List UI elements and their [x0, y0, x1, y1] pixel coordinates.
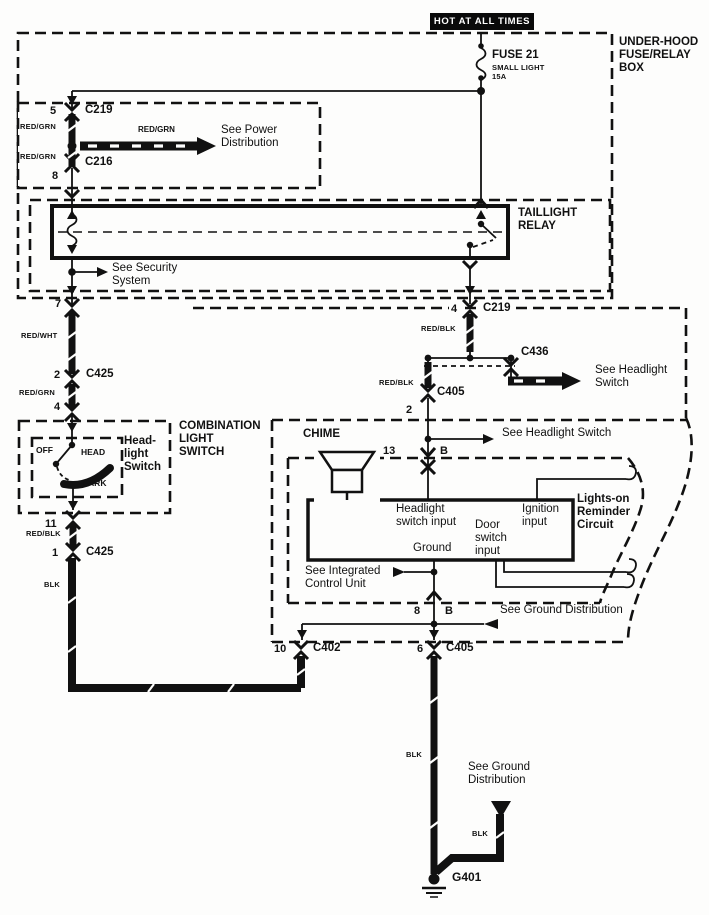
label-ground: Ground: [413, 542, 451, 555]
fuse-name-label: FUSE 21: [492, 49, 539, 62]
connector-label-c405-lower: C405: [446, 642, 474, 655]
switch-position-head: HEAD: [81, 448, 105, 458]
connector-label-c216: C216: [85, 156, 113, 169]
wire-label-blk-3: BLK: [472, 830, 488, 838]
diagram-artwork: [0, 0, 709, 915]
wire-label-red-blk-1: RED/BLK: [421, 325, 456, 333]
switch-position-park: PARK: [83, 479, 106, 489]
pin-label-5: 5: [50, 105, 56, 117]
fuse-rating-label: 15A: [492, 73, 506, 81]
wire-label-blk-1: BLK: [44, 581, 60, 589]
input-label-headlight-switch: Headlight switch input: [396, 503, 456, 529]
pin-label-6: 6: [417, 643, 423, 655]
combination-switch-label: COMBINATION LIGHT SWITCH: [179, 420, 261, 459]
pin-label-13: 13: [383, 445, 395, 457]
connector-label-c219-right: C219: [481, 302, 513, 315]
callout-see-headlight-switch-2: See Headlight Switch: [502, 427, 611, 440]
underhood-box-label: UNDER-HOOD FUSE/RELAY BOX: [619, 36, 698, 75]
arrow-see-headlight-chime-head: [483, 434, 494, 444]
pin-label-2-left: 2: [54, 369, 60, 381]
wire-label-red-blk-3: RED/BLK: [26, 530, 61, 538]
ground-label-g401: G401: [452, 871, 481, 884]
pin-label-8-b: 8: [414, 605, 420, 617]
pin-label-2-right: 2: [406, 404, 412, 416]
connector-label-b-top: B: [440, 445, 448, 457]
wire-door-input-1: [504, 560, 626, 572]
wire-label-red-blk-2: RED/BLK: [379, 379, 414, 387]
headlight-switch-label: Head- light Switch: [124, 435, 161, 474]
callout-see-power-distribution: See Power Distribution: [221, 124, 279, 150]
fuse-symbol: [477, 48, 486, 80]
wire-break-hook-1: [626, 466, 636, 479]
wire-blk-left-l: [72, 558, 301, 688]
arrow-see-headlight-switch: [508, 372, 581, 390]
callout-see-headlight-switch-1: See Headlight Switch: [595, 364, 667, 390]
pin-label-4-left: 4: [54, 401, 60, 413]
connector-label-b-bottom: B: [445, 605, 453, 617]
chime-icon: [314, 447, 380, 503]
wire-label-red-grn-1: RED/GRN: [20, 123, 56, 131]
lights-on-reminder-label: Lights-on Reminder Circuit: [577, 493, 630, 532]
wire-label-red-grn-2: RED/GRN: [20, 153, 56, 161]
callout-see-ground-distribution-2: See Ground Distribution: [468, 761, 530, 787]
wire-label-red-grn-arrow: RED/GRN: [138, 126, 175, 135]
wire-to-c402: [302, 624, 434, 640]
pin-label-7: 7: [55, 298, 61, 310]
callout-see-integrated-control-unit: See Integrated Control Unit: [305, 565, 380, 591]
callout-see-ground-distribution-1: See Ground Distribution: [500, 604, 623, 617]
arrow-see-ground-head: [484, 619, 498, 629]
pin-label-10: 10: [274, 643, 286, 655]
wiring-diagram: HOT AT ALL TIMES UNDER-HOOD FUSE/RELAY B…: [0, 0, 709, 915]
hot-at-all-times-banner: HOT AT ALL TIMES: [430, 13, 534, 30]
arrow-see-security-head: [97, 267, 108, 277]
relay-exit-chevron: [463, 261, 477, 268]
component-boxes: [18, 103, 573, 560]
pin-label-1: 1: [52, 547, 58, 559]
wire-break-hook-3: [624, 574, 634, 587]
input-label-ignition: Ignition input: [522, 503, 559, 529]
pin-label-4-right: 4: [449, 303, 459, 315]
wire-door-input-2: [496, 560, 624, 587]
connector-label-c219-top: C219: [85, 104, 113, 117]
connector-label-c436: C436: [521, 346, 549, 359]
reminder-outer-wavy-edge: [628, 418, 692, 642]
wire-blk-ground-branch: [436, 814, 500, 872]
switch-position-off: OFF: [36, 446, 53, 456]
chime-label: CHIME: [303, 428, 340, 441]
connector-label-c425-lower: C425: [86, 546, 114, 559]
taillight-relay-label: TAILLIGHT RELAY: [518, 207, 577, 233]
wire-label-red-wht: RED/WHT: [21, 332, 57, 340]
connector-label-c402: C402: [313, 642, 341, 655]
callout-see-security-system: See Security System: [112, 262, 177, 288]
connector-label-c425-upper: C425: [86, 368, 114, 381]
wire-label-red-grn-3: RED/GRN: [19, 389, 55, 397]
arrow-see-integrated-head: [393, 567, 405, 577]
ground-icon-g401: [422, 874, 446, 898]
input-label-door-switch: Door switch input: [475, 519, 507, 558]
wire-label-blk-2: BLK: [406, 751, 422, 759]
switch-dashed-arc: [57, 467, 69, 480]
wire-break-hook-2: [626, 559, 636, 572]
arrow-ground-branch-triangle: [491, 801, 511, 818]
pin-label-8: 8: [52, 170, 58, 182]
connector-label-c405-upper: C405: [437, 386, 465, 399]
